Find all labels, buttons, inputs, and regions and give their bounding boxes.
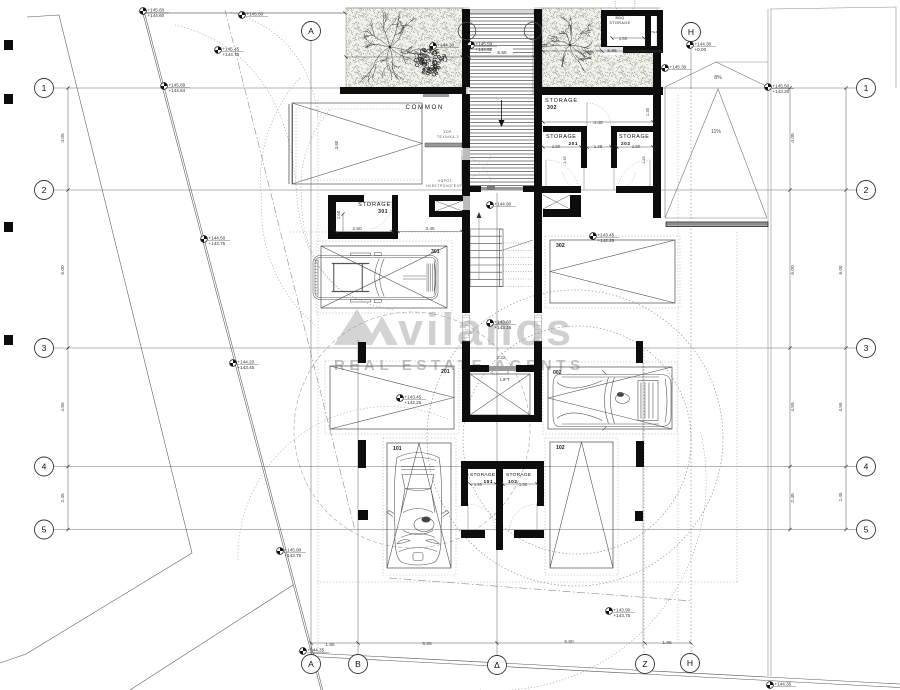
svg-text:1.45: 1.45	[562, 155, 567, 164]
svg-text:+143.45: +143.45	[598, 233, 615, 238]
svg-text:+144.64: +144.64	[169, 88, 186, 93]
svg-text:302: 302	[547, 105, 557, 111]
svg-text:+144.35: +144.35	[775, 682, 792, 687]
svg-text:1.30: 1.30	[645, 107, 650, 116]
svg-text:+0.00: +0.00	[695, 47, 707, 52]
svg-text:3.80: 3.80	[334, 140, 339, 149]
svg-text:H: H	[688, 27, 694, 37]
svg-text:Z: Z	[642, 659, 647, 669]
svg-text:1.45: 1.45	[641, 155, 646, 164]
svg-text:101: 101	[393, 446, 402, 452]
svg-text:2.45: 2.45	[60, 493, 66, 503]
svg-text:1.50: 1.50	[474, 482, 483, 487]
svg-text:STORAGE: STORAGE	[546, 134, 576, 140]
svg-text:+143.60: +143.60	[495, 320, 512, 325]
svg-text:4.55: 4.55	[790, 402, 796, 412]
svg-text:+143.45: +143.45	[238, 365, 255, 370]
svg-text:8%: 8%	[714, 75, 722, 81]
svg-text:4.05: 4.05	[790, 133, 796, 143]
svg-text:301: 301	[431, 249, 440, 255]
svg-text:+144.50: +144.50	[209, 236, 226, 241]
svg-text:STORAGE: STORAGE	[609, 21, 630, 25]
svg-text:102: 102	[556, 445, 565, 451]
svg-text:1.50: 1.50	[619, 36, 628, 41]
svg-text:002: 002	[553, 370, 562, 376]
svg-text:6.00: 6.00	[790, 265, 796, 275]
svg-text:ΧΩΡ.: ΧΩΡ.	[443, 130, 453, 134]
svg-text:+143.90: +143.90	[614, 608, 631, 613]
svg-text:2.45: 2.45	[790, 493, 796, 503]
svg-text:5: 5	[864, 525, 869, 535]
svg-text:301: 301	[378, 209, 388, 215]
svg-text:201: 201	[568, 141, 578, 147]
svg-text:2.45: 2.45	[838, 492, 843, 501]
svg-text:201: 201	[441, 369, 450, 375]
svg-text:A: A	[308, 659, 314, 669]
svg-text:+144.30: +144.30	[438, 43, 455, 48]
svg-text:+145.50: +145.50	[476, 42, 493, 47]
svg-text:1.50: 1.50	[519, 482, 528, 487]
svg-text:A: A	[308, 26, 314, 36]
svg-text:LIFT: LIFT	[500, 377, 510, 382]
svg-text:2: 2	[42, 185, 47, 195]
svg-text:+143.20: +143.20	[773, 89, 790, 94]
svg-text:+143.75: +143.75	[614, 613, 631, 618]
svg-text:vilanos: vilanos	[398, 304, 574, 355]
svg-text:2: 2	[864, 185, 869, 195]
svg-text:+145.60: +145.60	[148, 8, 165, 13]
svg-text:1: 1	[864, 83, 869, 93]
svg-text:3: 3	[864, 343, 869, 353]
svg-text:ΤΕΧΝΙΚΑ-3: ΤΕΧΝΙΚΑ-3	[437, 135, 459, 139]
svg-text:4.55: 4.55	[838, 402, 843, 411]
svg-text:+145.90: +145.90	[285, 548, 302, 553]
svg-text:+144.35: +144.35	[308, 648, 325, 653]
svg-text:+142.25: +142.25	[598, 238, 615, 243]
svg-text:+144.50: +144.50	[476, 47, 493, 52]
svg-text:5.55: 5.55	[497, 50, 507, 56]
svg-text:+145.45: +145.45	[223, 47, 240, 52]
svg-text:4.55: 4.55	[60, 402, 66, 412]
svg-text:+145.60: +145.60	[247, 12, 264, 17]
svg-text:4: 4	[42, 462, 47, 472]
svg-text:1.25: 1.25	[594, 144, 603, 149]
svg-text:1.50: 1.50	[552, 144, 561, 149]
svg-text:B: B	[355, 659, 361, 669]
svg-text:+144.30: +144.30	[695, 42, 712, 47]
svg-text:+144.90: +144.90	[495, 202, 512, 207]
svg-text:4: 4	[864, 462, 869, 472]
svg-text:STORAGE: STORAGE	[506, 472, 532, 478]
svg-text:STORAGE: STORAGE	[358, 202, 391, 208]
svg-text:4.05: 4.05	[60, 133, 66, 143]
svg-text:2.32: 2.32	[497, 355, 506, 360]
svg-text:H: H	[687, 658, 693, 668]
svg-text:COMMON: COMMON	[406, 104, 444, 111]
svg-text:3: 3	[42, 343, 47, 353]
svg-text:+145.89: +145.89	[169, 83, 186, 88]
svg-text:3.45: 3.45	[425, 226, 435, 232]
svg-text:STORAGE: STORAGE	[545, 98, 578, 104]
svg-text:STORAGE: STORAGE	[470, 472, 496, 478]
svg-text:2.50: 2.50	[352, 226, 362, 232]
svg-text:+142.25: +142.25	[405, 400, 422, 405]
svg-text:+143.15: +143.15	[495, 325, 512, 330]
svg-text:1: 1	[42, 83, 47, 93]
svg-text:+144.20: +144.20	[238, 360, 255, 365]
svg-text:ΧΩΡΟΣ: ΧΩΡΟΣ	[438, 179, 452, 183]
svg-text:+144.60: +144.60	[148, 13, 165, 18]
svg-text:REAL ESTATE AGENTS: REAL ESTATE AGENTS	[334, 357, 585, 374]
svg-text:BBQ: BBQ	[615, 16, 624, 20]
svg-text:6.00: 6.00	[60, 265, 66, 275]
svg-text:302: 302	[556, 243, 565, 249]
svg-text:+143.75: +143.75	[285, 553, 302, 558]
svg-text:Δ: Δ	[494, 660, 500, 670]
svg-text:11%: 11%	[711, 129, 721, 135]
svg-text:5: 5	[42, 525, 47, 535]
svg-text:+143.75: +143.75	[209, 241, 226, 246]
svg-text:STORAGE: STORAGE	[619, 134, 649, 140]
svg-text:+145.30: +145.30	[670, 65, 687, 70]
svg-text:+144.75: +144.75	[223, 52, 240, 57]
svg-text:202: 202	[621, 141, 631, 147]
svg-text:+145.50: +145.50	[773, 84, 790, 89]
svg-text:5.80: 5.80	[564, 639, 574, 645]
svg-text:5.55: 5.55	[422, 641, 432, 647]
svg-text:ΗΛΕΚΤΡΟΛΟΓΕΙΟΥ: ΗΛΕΚΤΡΟΛΟΓΕΙΟΥ	[426, 184, 464, 188]
svg-text:+143.45: +143.45	[405, 395, 422, 400]
svg-text:1.50: 1.50	[632, 144, 641, 149]
svg-text:4.45: 4.45	[593, 120, 603, 126]
svg-text:6.00: 6.00	[838, 265, 843, 274]
svg-text:WATER: WATER	[646, 30, 659, 34]
svg-text:1.60: 1.60	[336, 210, 341, 219]
